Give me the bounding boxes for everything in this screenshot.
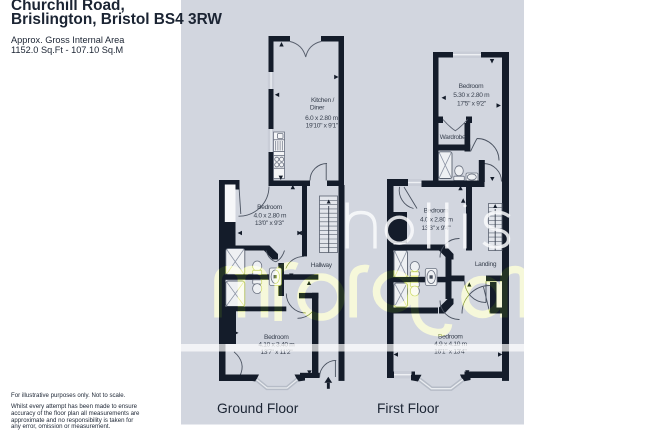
svg-text:Bedroom: Bedroom	[264, 334, 289, 341]
svg-text:Bedroom: Bedroom	[459, 83, 484, 90]
svg-text:Wardrobe: Wardrobe	[440, 134, 466, 141]
svg-text:Diner: Diner	[310, 104, 325, 111]
svg-text:Hallway: Hallway	[311, 262, 333, 269]
svg-text:Bedroom: Bedroom	[257, 204, 282, 211]
svg-text:13'0" x 9'3": 13'0" x 9'3"	[255, 220, 285, 227]
svg-text:Landing: Landing	[475, 261, 497, 268]
svg-text:Kitchen /: Kitchen /	[311, 97, 334, 104]
svg-text:5.30 x 2.80 m: 5.30 x 2.80 m	[453, 92, 490, 99]
svg-text:6.0 x 2.80 m: 6.0 x 2.80 m	[305, 115, 338, 122]
svg-text:19'10" x 9'1": 19'10" x 9'1"	[306, 123, 339, 130]
svg-text:4.0 x 2.80 m: 4.0 x 2.80 m	[253, 212, 286, 219]
svg-text:17'5" x 9'2": 17'5" x 9'2"	[457, 101, 487, 108]
